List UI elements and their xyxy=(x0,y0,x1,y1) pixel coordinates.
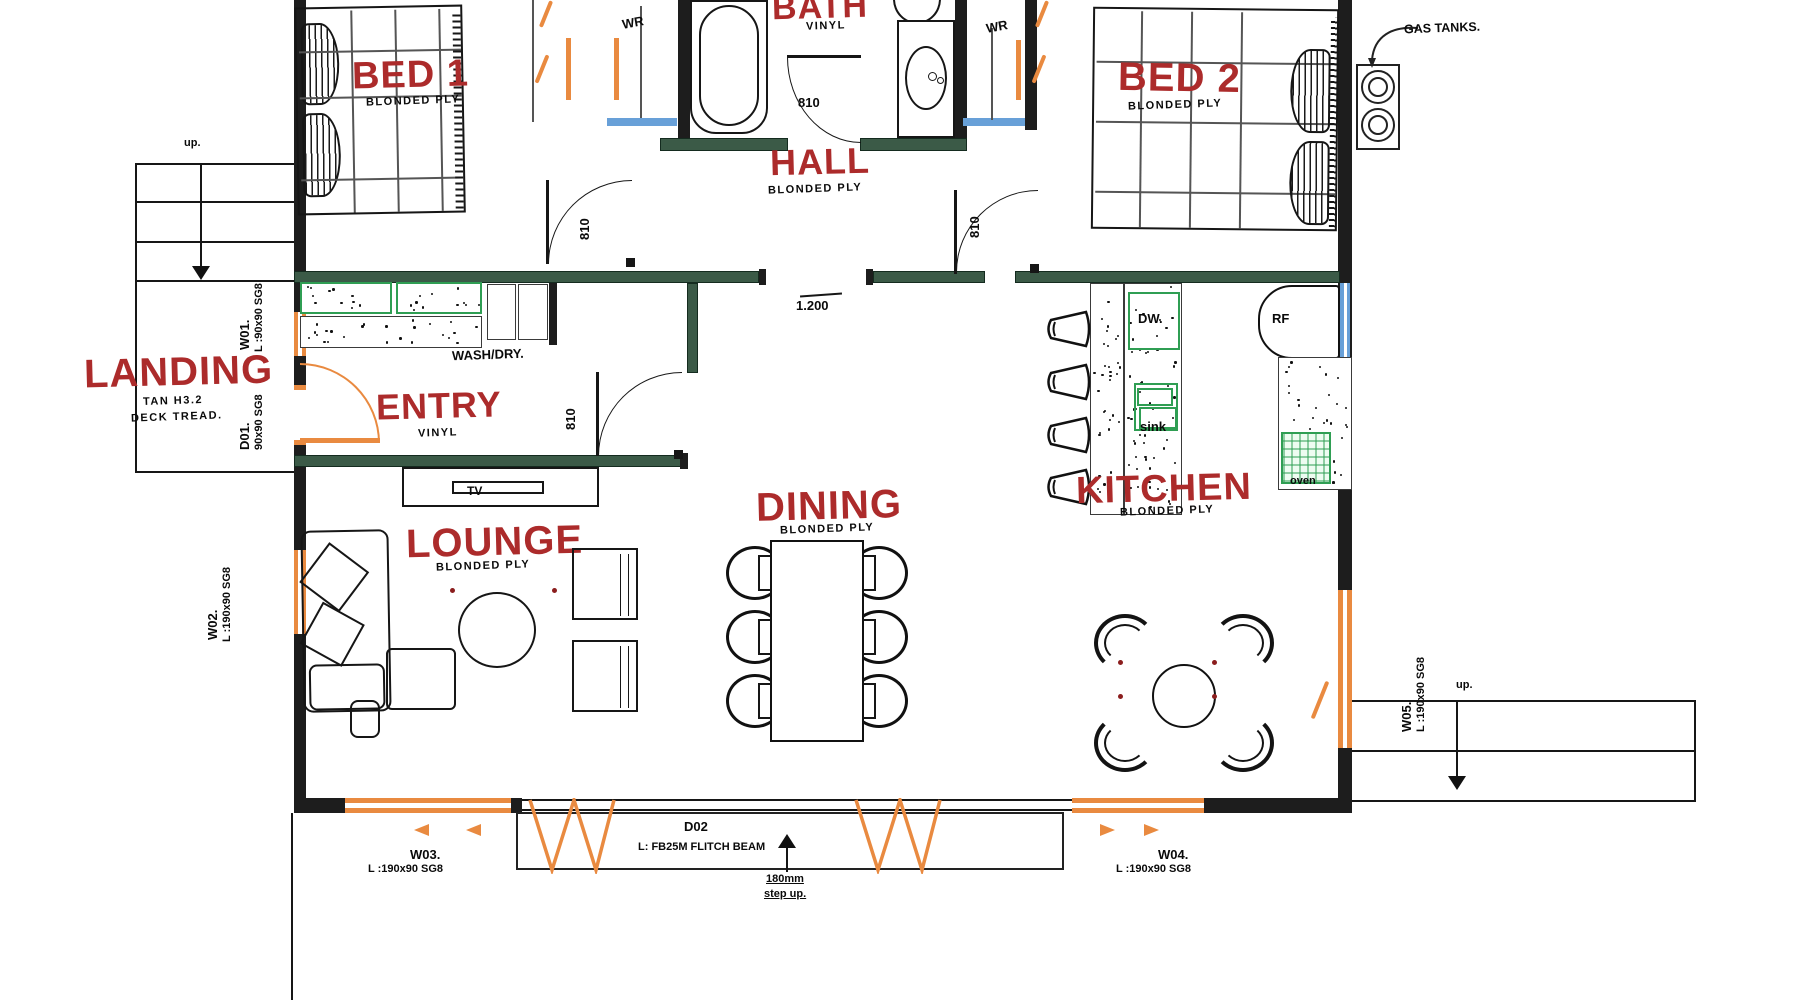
entry-bench-lower xyxy=(300,316,482,348)
wardrobe2-wall xyxy=(1025,0,1037,130)
landing-label: LANDING xyxy=(84,350,274,395)
wardrobe-sliding-door xyxy=(566,38,571,100)
wardrobe2-back-wall xyxy=(963,118,1025,126)
window-w01-label: W01. xyxy=(238,288,251,350)
door-hinge xyxy=(626,258,635,267)
entry-bench xyxy=(396,282,482,314)
kitchen-label: KITCHEN xyxy=(1076,468,1253,511)
window-w03-spec: L :190x90 SG8 xyxy=(368,864,443,875)
blanket-line xyxy=(394,10,400,212)
window-mark xyxy=(1311,681,1330,720)
bed1-label: BED 1 xyxy=(352,54,470,95)
bath-door-width: 810 xyxy=(798,96,820,109)
window-direction-chevron xyxy=(414,824,429,836)
entry-floor-label: VINYL xyxy=(418,427,458,439)
layout-dot xyxy=(1212,694,1217,699)
bar-stool xyxy=(1044,416,1092,454)
lounge-wall xyxy=(294,455,686,467)
pillow xyxy=(300,23,339,106)
pillow xyxy=(1290,49,1331,133)
washer xyxy=(487,284,516,340)
bed-2 xyxy=(1091,7,1339,232)
armchair xyxy=(572,548,638,620)
entry-door-width: 810 xyxy=(564,386,577,430)
patio-chair-inner xyxy=(1222,624,1264,662)
window-w03-label: W03. xyxy=(410,848,440,861)
dimension-tick xyxy=(800,293,842,298)
window-high-kitchen-glass xyxy=(1344,283,1347,359)
landing-floor-label2: DECK TREAD. xyxy=(131,410,223,424)
window-w03-glass xyxy=(345,803,511,808)
step-up-arrow xyxy=(778,834,796,848)
patio-chair xyxy=(1212,714,1274,772)
deck-direction-line xyxy=(1456,700,1458,778)
bath-wall-bottom xyxy=(860,138,967,151)
sofa xyxy=(300,529,391,713)
mid-wall-right xyxy=(873,271,985,283)
step-up-line xyxy=(786,848,788,872)
sofa-cushion xyxy=(299,542,369,612)
landing-edge xyxy=(135,471,294,473)
entry-wall xyxy=(687,283,698,373)
door-hinge xyxy=(674,450,683,459)
patio-chair xyxy=(1094,614,1156,672)
wardrobe-sliding-door xyxy=(1016,40,1021,100)
door-d01-swing xyxy=(300,363,380,443)
deck-edge-right xyxy=(1694,700,1696,802)
layout-dot xyxy=(1118,694,1123,699)
kitchen-sink-bowl xyxy=(1137,388,1173,406)
blanket-line xyxy=(1139,11,1143,227)
bath-wall-left xyxy=(678,0,690,150)
vanity-tap xyxy=(928,72,937,81)
patio-chair-inner xyxy=(1222,724,1264,762)
dining-floor-label: BLONDED PLY xyxy=(780,522,875,536)
wash-dry-label: WASH/DRY. xyxy=(452,347,524,362)
gas-tanks-label: GAS TANKS. xyxy=(1404,21,1481,36)
pillow xyxy=(1289,141,1330,225)
stairs-direction-line xyxy=(200,163,202,267)
mid-wall-cap xyxy=(866,269,873,285)
kitchen-floor-label: BLONDED PLY xyxy=(1120,504,1215,518)
bar-stool xyxy=(1044,363,1092,401)
stairs-tread xyxy=(135,241,294,243)
patio-chair xyxy=(1094,714,1156,772)
layout-dot xyxy=(1212,660,1217,665)
tv xyxy=(452,481,544,494)
window-w02-spec: L :190x90 SG8 xyxy=(222,542,233,642)
window-direction-chevron xyxy=(466,824,481,836)
blanket-line xyxy=(1239,12,1243,228)
blanket-line xyxy=(1189,12,1193,228)
step-note-label: step up. xyxy=(764,889,806,900)
armchair-back xyxy=(620,646,629,708)
mid-wall-cap xyxy=(759,269,766,285)
hall-label: HALL xyxy=(770,143,871,182)
stairs-up-label: up. xyxy=(184,138,201,149)
door-d02-spec: L: FB25M FLITCH BEAM xyxy=(638,842,765,853)
window-w05-spec: L :190x90 SG8 xyxy=(1416,632,1427,732)
bar-stool xyxy=(1044,310,1092,348)
entry-bench xyxy=(300,282,392,314)
hall-opening-dimension: 1.200 xyxy=(796,299,829,312)
stairs-tread xyxy=(135,163,294,165)
wardrobe1-label: WR xyxy=(621,14,645,31)
dining-label: DINING xyxy=(756,484,903,528)
window-w04-spec: L :190x90 SG8 xyxy=(1116,864,1191,875)
deck-up-label: up. xyxy=(1456,680,1473,691)
entry-label: ENTRY xyxy=(376,386,503,425)
patio-chair-inner xyxy=(1104,624,1146,662)
round-table xyxy=(1152,664,1216,728)
deck-direction-arrow xyxy=(1448,776,1466,790)
door-direction-mark xyxy=(1035,0,1049,27)
wardrobe2-label: WR xyxy=(985,18,1009,35)
hall-floor-label: BLONDED PLY xyxy=(768,182,863,196)
stairs-edge xyxy=(135,163,137,473)
fridge xyxy=(1258,285,1340,359)
window-direction-chevron xyxy=(1100,824,1115,836)
stairs-tread xyxy=(135,280,294,282)
patio-chair xyxy=(1212,614,1274,672)
patio-chair-inner xyxy=(1104,724,1146,762)
lounge-label: LOUNGE xyxy=(406,520,584,565)
bathtub-basin xyxy=(699,5,759,126)
wardrobe1-back-wall xyxy=(607,118,677,126)
bath-floor-label: VINYL xyxy=(806,20,846,32)
window-w02-label: W02. xyxy=(206,578,219,640)
sofa-cushion xyxy=(300,602,365,667)
coffee-table xyxy=(458,592,536,668)
door-d02-label: D02 xyxy=(684,820,708,833)
door-d01-leaf xyxy=(300,438,380,443)
bed-edge-ruffle xyxy=(452,11,463,209)
lounge-floor-label: BLONDED PLY xyxy=(436,559,531,573)
gas-tank-inner xyxy=(1368,77,1388,97)
door-direction-mark xyxy=(539,0,553,27)
laundry-wall xyxy=(549,283,557,345)
bifold-door-panels xyxy=(852,798,944,874)
blanket-line xyxy=(350,10,356,212)
bed2-door-width: 810 xyxy=(968,194,981,238)
window-w04-glass xyxy=(1072,803,1204,808)
layout-dot xyxy=(552,588,557,593)
bed-edge-ruffle xyxy=(1329,17,1338,227)
door-d01-spec: 90x90 SG8 xyxy=(254,366,265,450)
stairs-tread xyxy=(135,201,294,203)
wardrobe-sliding-door xyxy=(614,38,619,100)
window-direction-chevron xyxy=(1144,824,1159,836)
mid-wall-right xyxy=(1015,271,1340,283)
dryer xyxy=(518,284,548,340)
sofa-chaise xyxy=(386,648,456,710)
tv-label: TV xyxy=(467,485,482,497)
pillow xyxy=(302,113,341,198)
dining-table xyxy=(770,540,864,742)
bed2-label: BED 2 xyxy=(1118,57,1241,99)
deck-edge-left xyxy=(291,813,293,1000)
door-d01-label: D01. xyxy=(238,398,251,450)
layout-dot xyxy=(1118,660,1123,665)
ottoman xyxy=(350,700,380,738)
wardrobe-rail xyxy=(991,28,993,120)
landing-floor-label: TAN H3.2 xyxy=(143,395,203,408)
step-height-label: 180mm xyxy=(766,874,804,885)
blanket-line xyxy=(438,9,444,211)
deck-step-edge xyxy=(1352,750,1696,752)
bed1-door-width: 810 xyxy=(578,196,591,240)
window-w04-label: W04. xyxy=(1158,848,1188,861)
vanity-tap xyxy=(937,77,944,84)
bed-1 xyxy=(294,5,466,216)
dishwasher-label: DW. xyxy=(1138,312,1163,325)
window-w01-spec: L :90x90 SG8 xyxy=(254,258,265,352)
sink-label: sink xyxy=(1140,420,1166,433)
oven-label: oven xyxy=(1290,476,1316,487)
armchair-back xyxy=(620,554,629,616)
stairs-direction-arrow xyxy=(192,266,210,280)
gas-tank-inner xyxy=(1368,115,1388,135)
layout-dot xyxy=(450,588,455,593)
floor-plan: up. LANDING TAN H3.2 DECK TREAD. W01. L … xyxy=(0,0,1800,1000)
door-hinge xyxy=(1030,264,1039,273)
bath-wall-right xyxy=(955,0,967,150)
window-w05-glass xyxy=(1343,590,1347,748)
deck-step-edge xyxy=(1352,800,1696,802)
window-w05-label: W05. xyxy=(1400,670,1413,732)
entry-door-swing xyxy=(598,372,682,456)
bifold-door-panels xyxy=(526,798,618,874)
armchair xyxy=(572,640,638,712)
door-direction-mark xyxy=(535,54,550,83)
fridge-label: RF xyxy=(1272,312,1289,325)
wardrobe-edge xyxy=(532,0,534,122)
